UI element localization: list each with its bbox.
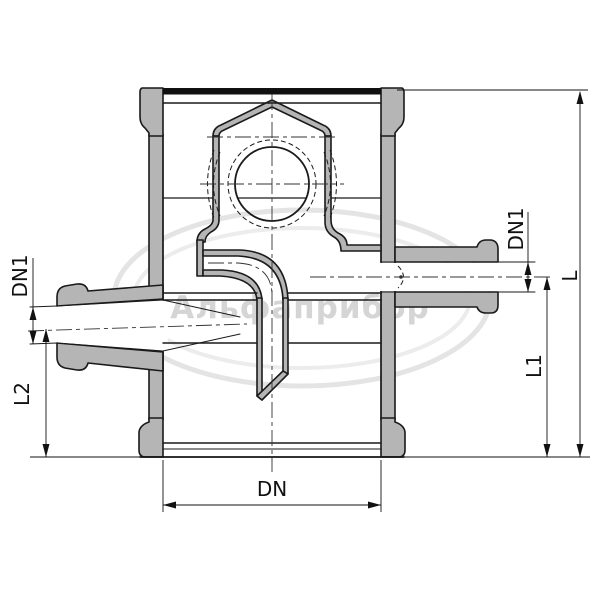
drop-tube-left-wall (257, 298, 262, 400)
left-body-wall (149, 134, 163, 420)
axis-intersection-dot (399, 275, 403, 279)
label-dn1-right: DN1 (504, 207, 528, 250)
drop-tube-right-wall (283, 298, 288, 374)
bottom-flange-left (139, 418, 163, 457)
valve-section-drawing: Альфаприбор (0, 0, 600, 600)
elbow-connector-wall (197, 240, 203, 276)
top-flange-face-band (163, 88, 381, 95)
label-l2: L2 (10, 382, 34, 406)
left-bore-opening (58, 300, 168, 351)
label-dn1-left: DN1 (8, 254, 32, 297)
label-l: L (558, 270, 582, 282)
label-l1: L1 (522, 354, 546, 378)
drawing-page: Альфаприбор (0, 0, 600, 600)
bottom-flange-right (381, 418, 405, 457)
label-dn: DN (257, 477, 287, 501)
top-flange-left (140, 88, 163, 136)
top-flange-right (381, 88, 404, 136)
